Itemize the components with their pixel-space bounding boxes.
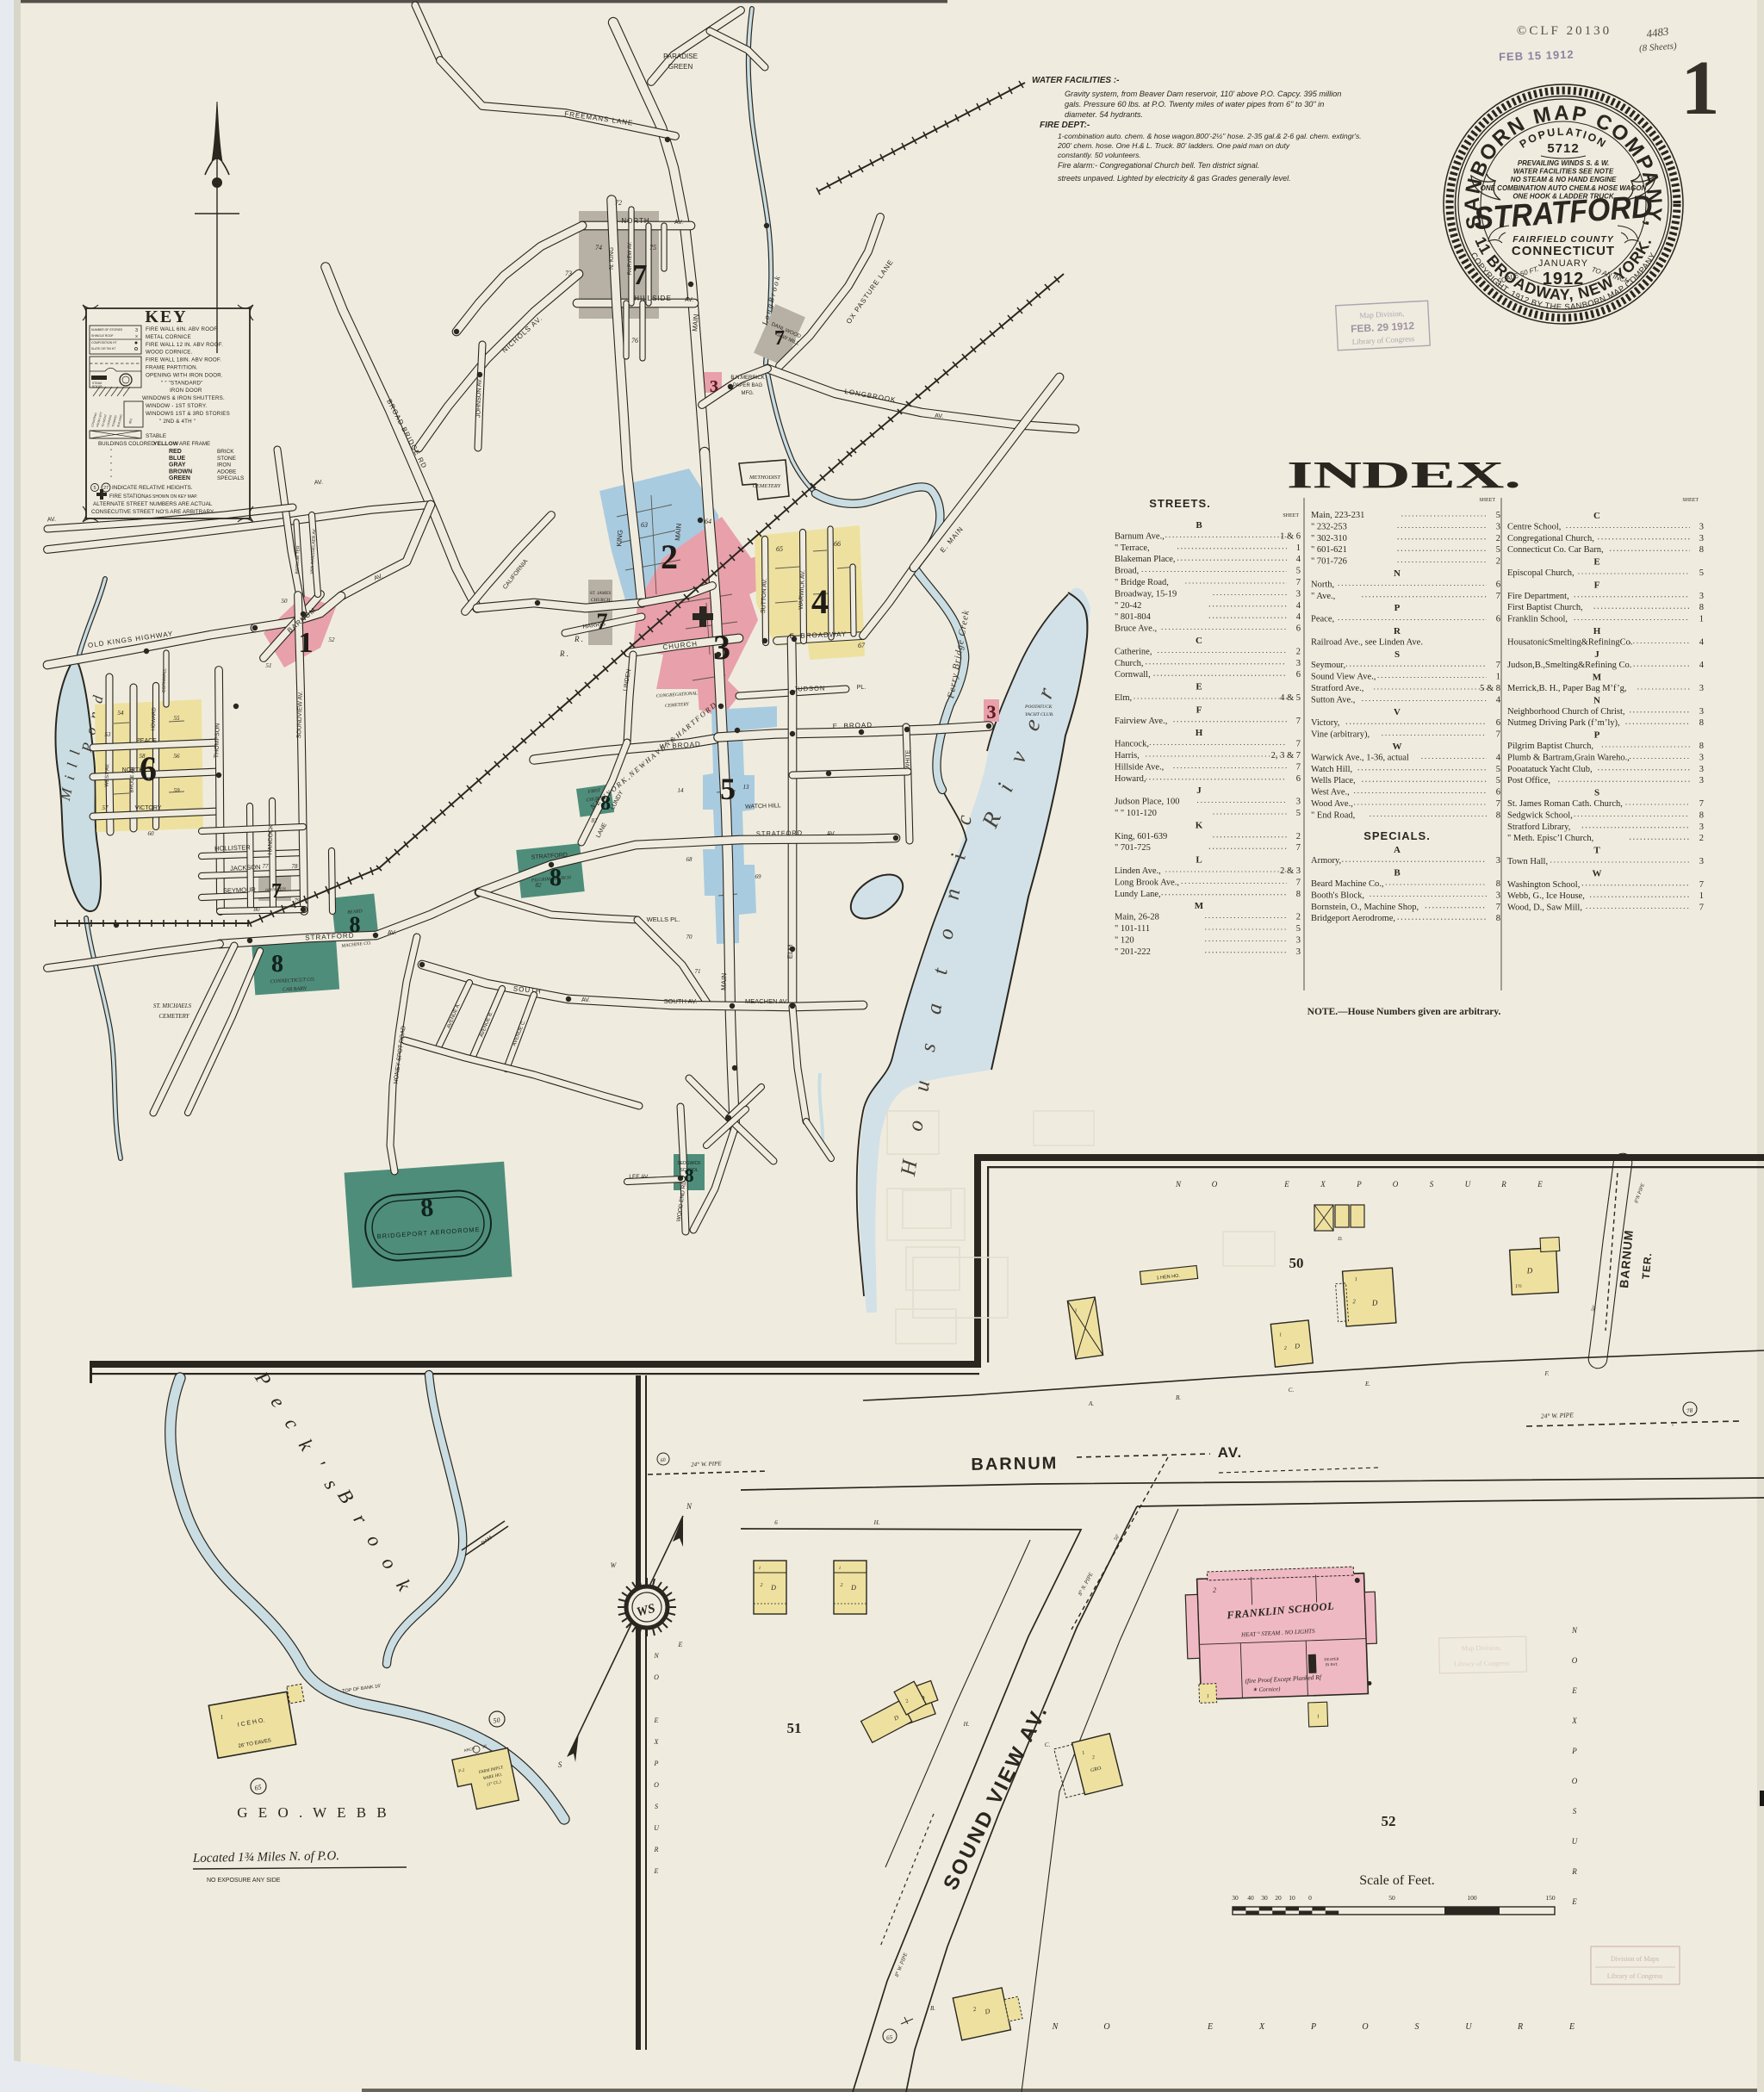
svg-text:B.: B. [1176, 1394, 1181, 1401]
svg-text:3: 3 [987, 701, 997, 723]
svg-text:NO STEAM & NO HAND ENGINE: NO STEAM & NO HAND ENGINE [1511, 176, 1617, 183]
svg-text:" 232-253: " 232-253 [1311, 522, 1347, 531]
svg-text:Wells Place,: Wells Place, [1311, 776, 1356, 785]
svg-text:W: W [1593, 868, 1602, 878]
svg-text:E: E [1568, 2022, 1575, 2032]
svg-text:SPECIALS.: SPECIALS. [1363, 829, 1431, 842]
svg-text:JUDSON: JUDSON [793, 684, 825, 692]
svg-text:FRAME PARTITION.: FRAME PARTITION. [146, 365, 198, 371]
svg-text:7: 7 [1699, 903, 1704, 913]
svg-text:WATER FACILITIES :-: WATER FACILITIES :- [1032, 76, 1120, 85]
svg-text:1: 1 [299, 627, 314, 659]
svg-text:SOUTH AV.: SOUTH AV. [664, 997, 698, 1005]
svg-text:1: 1 [1296, 543, 1301, 553]
svg-text:FIRE WALL 18IN. ABV ROOF.: FIRE WALL 18IN. ABV ROOF. [146, 357, 221, 363]
svg-text:MAIN: MAIN [720, 973, 729, 991]
svg-text:4: 4 [1496, 753, 1501, 762]
svg-text:WATER FACILITIES SEE NOTE: WATER FACILITIES SEE NOTE [1513, 168, 1614, 176]
svg-text:Armory,: Armory, [1311, 856, 1341, 866]
svg-text:6: 6 [1496, 580, 1500, 589]
svg-text:AV.: AV. [1218, 1444, 1243, 1461]
svg-text:Cornwall,: Cornwall, [1115, 670, 1151, 680]
svg-text:78: 78 [292, 863, 299, 870]
svg-text:R: R [654, 1846, 659, 1853]
svg-text:TER.: TER. [1640, 1251, 1655, 1279]
svg-text:JACKSON: JACKSON [230, 863, 261, 872]
svg-text:E: E [1537, 1180, 1543, 1189]
svg-text:3: 3 [1699, 522, 1704, 531]
svg-text:5: 5 [93, 486, 96, 491]
svg-text:5: 5 [1296, 924, 1301, 934]
svg-text:P: P [1571, 1747, 1577, 1755]
svg-text:8: 8 [271, 951, 283, 978]
svg-text:WINDOWS 1ST & 3RD STORIES: WINDOWS 1ST & 3RD STORIES [146, 411, 230, 417]
svg-text:BRUCE AV.: BRUCE AV. [129, 766, 135, 793]
svg-text:1: 1 [1207, 1694, 1209, 1699]
svg-text:WATCH HILL: WATCH HILL [745, 803, 781, 810]
svg-text:3: 3 [1296, 947, 1301, 957]
svg-text:63: 63 [641, 521, 648, 529]
svg-text:6: 6 [1296, 670, 1301, 680]
svg-text:S: S [655, 1803, 658, 1810]
svg-text:" Terrace,: " Terrace, [1115, 543, 1150, 553]
svg-text:V: V [1394, 707, 1401, 717]
svg-text:2: 2 [1284, 1346, 1288, 1351]
svg-text:diameter. 54 hydrants.: diameter. 54 hydrants. [1065, 110, 1143, 119]
svg-text:Washington School,: Washington School, [1507, 880, 1580, 890]
svg-text:W: W [1393, 742, 1402, 752]
svg-text:GRAY: GRAY [169, 462, 186, 469]
svg-text:1: 1 [1496, 673, 1500, 682]
svg-text:D: D [770, 1584, 776, 1592]
svg-text:4: 4 [1496, 695, 1501, 705]
svg-text:FIRE WALL 6IN. ABV ROOF.: FIRE WALL 6IN. ABV ROOF. [146, 326, 219, 332]
svg-text:INDEX.: INDEX. [1287, 454, 1521, 496]
svg-text:FIRE STATION,: FIRE STATION, [109, 494, 147, 500]
svg-text:M: M [1593, 673, 1602, 683]
svg-text:81: 81 [592, 817, 598, 824]
svg-text:R .: R . [559, 649, 568, 658]
svg-text:Howard,: Howard, [1115, 774, 1146, 784]
svg-text:F.: F. [1543, 1370, 1549, 1377]
svg-text:U: U [1465, 2022, 1472, 2032]
svg-text:O: O [654, 1673, 659, 1681]
svg-text:Plumb & Bartram,Grain Wareho.,: Plumb & Bartram,Grain Wareho., [1507, 753, 1630, 762]
svg-text:HANCOCK: HANCOCK [267, 824, 274, 855]
svg-text:77: 77 [263, 863, 270, 870]
svg-text:Division of Maps: Division of Maps [1611, 1955, 1659, 1963]
svg-text:Episcopal Church,: Episcopal Church, [1507, 568, 1575, 578]
svg-text:3: 3 [1296, 659, 1301, 668]
svg-text:STABLE: STABLE [146, 433, 166, 439]
svg-text:": " [110, 469, 112, 475]
svg-text:Elm,: Elm, [1115, 693, 1132, 703]
svg-text:40: 40 [1247, 1894, 1254, 1902]
svg-text:PL.: PL. [857, 685, 866, 691]
svg-text:Merrick,B. H., Paper Bag M’f’: Merrick,B. H., Paper Bag M’f’g, [1507, 684, 1627, 693]
svg-text:ST. JAMES: ST. JAMES [590, 591, 612, 596]
svg-text:Linden Ave.,: Linden Ave., [1115, 866, 1161, 876]
svg-text:E: E [1207, 2022, 1213, 2032]
svg-text:INDICATE RELATIVE HEIGHTS.: INDICATE RELATIVE HEIGHTS. [112, 485, 193, 491]
svg-text:76: 76 [631, 337, 638, 345]
svg-text:R: R [1571, 1867, 1577, 1876]
svg-text:3: 3 [1699, 776, 1704, 785]
svg-text:West Ave.,: West Ave., [1311, 788, 1350, 798]
svg-text:SPECIALS: SPECIALS [217, 475, 244, 481]
svg-text:Railroad Ave., see Linden Ave.: Railroad Ave., see Linden Ave. [1311, 637, 1423, 647]
svg-text:8: 8 [685, 1164, 694, 1186]
svg-text:AS SHOWN ON KEY MAP.: AS SHOWN ON KEY MAP. [146, 494, 197, 500]
svg-text:R: R [1500, 1180, 1506, 1189]
svg-text:51: 51 [787, 1720, 802, 1736]
svg-text:NOTE.—House Numbers given are: NOTE.—House Numbers given are arbitrary. [1307, 1007, 1501, 1017]
svg-text:" 701-726: " 701-726 [1311, 557, 1347, 567]
svg-text:O: O [1572, 1656, 1578, 1665]
svg-text:ADOBE: ADOBE [217, 469, 236, 475]
svg-text:ARE FRAME: ARE FRAME [179, 441, 210, 447]
svg-text:O: O [1393, 1180, 1399, 1189]
svg-text:6: 6 [1296, 624, 1301, 634]
svg-text:Nutmeg Driving Park (f’m’ly),: Nutmeg Driving Park (f’m’ly), [1507, 718, 1620, 728]
svg-text:3: 3 [1496, 856, 1500, 866]
svg-text:14: 14 [678, 787, 685, 794]
svg-text:7: 7 [1496, 903, 1500, 912]
svg-text:N: N [1175, 1180, 1182, 1189]
svg-text:79: 79 [295, 897, 301, 904]
svg-text:Town Hall,: Town Hall, [1507, 857, 1548, 866]
svg-text:S: S [1430, 1180, 1434, 1189]
svg-text:S: S [1594, 788, 1599, 798]
svg-text:STONE: STONE [217, 456, 236, 462]
svg-text:70: 70 [686, 934, 693, 940]
svg-text:R: R [1517, 2022, 1523, 2032]
svg-text:X: X [1320, 1180, 1326, 1189]
svg-text:50: 50 [282, 598, 289, 605]
svg-text:13: 13 [743, 784, 750, 791]
svg-text:D: D [1525, 1266, 1533, 1275]
svg-text:8: 8 [1496, 914, 1500, 923]
svg-text:7: 7 [1496, 799, 1500, 809]
svg-text:T: T [1593, 846, 1600, 856]
svg-text:North,: North, [1311, 580, 1334, 589]
svg-text:IN BST.: IN BST. [1326, 1662, 1339, 1667]
svg-text:3: 3 [1496, 522, 1500, 531]
svg-text:1: 1 [1355, 1277, 1357, 1282]
svg-text:Broad,: Broad, [1115, 567, 1139, 576]
svg-text:HILLSIDE: HILLSIDE [634, 295, 672, 302]
svg-text:C: C [1593, 511, 1600, 521]
svg-text:8: 8 [350, 912, 361, 937]
svg-text:METAL CORNICE: METAL CORNICE [146, 334, 191, 340]
svg-text:2 & 3: 2 & 3 [1280, 866, 1301, 876]
svg-text:P: P [1310, 2022, 1316, 2032]
svg-text:20: 20 [1275, 1894, 1282, 1902]
svg-text:Warwick Ave., 1-36, actual: Warwick Ave., 1-36, actual [1311, 753, 1409, 762]
svg-text:O: O [654, 1781, 659, 1789]
svg-text:3: 3 [710, 377, 718, 396]
svg-text:PAPER BAG: PAPER BAG [733, 383, 763, 388]
svg-text:8: 8 [1699, 742, 1704, 751]
svg-text:SHEET: SHEET [1479, 498, 1495, 503]
svg-text:D.: D. [1337, 1237, 1343, 1242]
svg-text:68: 68 [686, 856, 693, 863]
svg-text:X: X [1571, 1716, 1577, 1725]
svg-text:SLATE OR TIN HT: SLATE OR TIN HT [91, 347, 115, 351]
svg-text:B: B [1196, 520, 1202, 531]
svg-text:BOILER: BOILER [92, 385, 102, 388]
svg-text:constantly. 50 volunteers.: constantly. 50 volunteers. [1058, 151, 1141, 159]
svg-text:" Meth. Episc’l Church,: " Meth. Episc’l Church, [1507, 834, 1593, 843]
svg-text:" 801-804: " 801-804 [1115, 612, 1152, 622]
svg-text:Library of Congress: Library of Congress [1454, 1659, 1510, 1667]
svg-text:Long Brook Ave.,: Long Brook Ave., [1115, 878, 1179, 887]
svg-text:Bridgeport Aerodrome,: Bridgeport Aerodrome, [1311, 914, 1395, 923]
svg-text:FIRE DEPT:-: FIRE DEPT:- [1040, 121, 1090, 130]
svg-text:1: 1 [1699, 615, 1704, 624]
svg-text:K: K [1196, 820, 1203, 830]
svg-text:FEB 15 1912: FEB 15 1912 [1499, 47, 1575, 63]
svg-text:7: 7 [1296, 878, 1301, 887]
svg-text:4: 4 [1699, 661, 1705, 670]
svg-text:WEST AV.: WEST AV. [105, 763, 111, 787]
svg-text:CORNWALL: CORNWALL [162, 668, 168, 693]
svg-text:Hillside Ave.,: Hillside Ave., [1115, 762, 1164, 772]
svg-text:82: 82 [536, 882, 543, 889]
svg-text:Judson,B.,Smelting&Refining Co: Judson,B.,Smelting&Refining Co. [1507, 661, 1631, 670]
svg-text:LEE AV.: LEE AV. [629, 1174, 649, 1180]
svg-text:6: 6 [1296, 774, 1301, 784]
svg-text:P: P [1356, 1180, 1362, 1189]
svg-text:73: 73 [565, 270, 572, 277]
svg-text:53: 53 [105, 731, 112, 738]
svg-text:7: 7 [633, 259, 648, 291]
svg-text:4: 4 [1296, 612, 1301, 622]
svg-text:E: E [678, 1641, 683, 1648]
svg-text:Franklin School,: Franklin School, [1507, 615, 1568, 624]
svg-text:MEACHEN AV.: MEACHEN AV. [745, 997, 788, 1005]
svg-text:6: 6 [140, 749, 157, 788]
svg-text:7: 7 [1296, 717, 1301, 726]
svg-text:COMPOSITION HT: COMPOSITION HT [91, 341, 117, 345]
svg-text:KEY: KEY [145, 307, 187, 326]
svg-text:4: 4 [1296, 555, 1301, 564]
svg-text:80: 80 [254, 906, 261, 913]
svg-text:PARADISE: PARADISE [663, 53, 698, 60]
svg-text:10: 10 [1289, 1894, 1295, 1902]
svg-text:WINDOW - 1ST STORY.: WINDOW - 1ST STORY. [146, 403, 207, 409]
svg-text:67: 67 [858, 642, 866, 649]
svg-text:Sedgwick School,: Sedgwick School, [1507, 810, 1573, 820]
svg-text:Post Office,: Post Office, [1507, 776, 1550, 785]
svg-text:Congregational Church,: Congregational Church, [1507, 534, 1594, 543]
svg-text:R: R [1394, 626, 1401, 636]
svg-text:0: 0 [1308, 1894, 1312, 1902]
svg-text:Sutton Ave.,: Sutton Ave., [1311, 695, 1355, 705]
svg-text:Vine (arbitrary),: Vine (arbitrary), [1311, 730, 1370, 740]
svg-text:L: L [1196, 855, 1202, 866]
svg-text:J: J [1196, 785, 1202, 796]
svg-text:1 & 6: 1 & 6 [1280, 531, 1301, 541]
svg-text:2, 3 & 7: 2, 3 & 7 [1271, 751, 1301, 760]
svg-text:D: D [850, 1584, 856, 1592]
svg-text:NORTH: NORTH [621, 217, 649, 225]
svg-text:SHEET: SHEET [1283, 513, 1299, 518]
svg-text:64: 64 [705, 518, 711, 525]
svg-text:IRON DOOR: IRON DOOR [170, 388, 202, 394]
svg-text:Catherine,: Catherine, [1115, 647, 1152, 656]
svg-text:7: 7 [1496, 592, 1500, 601]
svg-text:3: 3 [1296, 798, 1301, 807]
svg-text:OPENING WITH IRON DOOR.: OPENING WITH IRON DOOR. [146, 372, 223, 378]
svg-text:O: O [1572, 1777, 1578, 1785]
svg-text:St. James Roman Cath. Church,: St. James Roman Cath. Church, [1507, 799, 1623, 809]
svg-text:1: 1 [1279, 1332, 1283, 1338]
svg-text:55: 55 [174, 715, 181, 722]
svg-text:CEMETERY: CEMETERY [753, 483, 782, 489]
svg-text:YACHT CLUB.: YACHT CLUB. [1025, 712, 1053, 717]
svg-text:1912: 1912 [1543, 270, 1585, 289]
svg-text:": " [110, 450, 112, 455]
svg-text:100: 100 [1467, 1894, 1477, 1902]
svg-text:3: 3 [1699, 534, 1704, 543]
svg-text:HEATER: HEATER [1324, 1657, 1339, 1662]
svg-text:ST. MICHAELS: ST. MICHAELS [153, 1003, 192, 1009]
svg-text:CONSECUTIVE STREET NO'S ARE AR: CONSECUTIVE STREET NO'S ARE ARBITRARY. [91, 509, 214, 515]
svg-text:5: 5 [1496, 765, 1500, 774]
svg-text:52: 52 [1382, 1813, 1396, 1829]
svg-text:STRATFORD: STRATFORD [756, 829, 803, 838]
svg-text:2: 2 [761, 1583, 763, 1588]
svg-text:GREEN: GREEN [169, 475, 190, 481]
svg-text:7: 7 [597, 609, 608, 634]
svg-text:E.: E. [1364, 1381, 1370, 1387]
svg-text:NO EXPOSURE ANY SIDE: NO EXPOSURE ANY SIDE [207, 1878, 281, 1884]
svg-text:CHURCH: CHURCH [591, 598, 612, 603]
svg-text:AV.: AV. [47, 517, 57, 524]
svg-text:D: D [1294, 1342, 1301, 1350]
svg-text:50: 50 [1289, 1255, 1304, 1271]
svg-text:5: 5 [1296, 809, 1301, 818]
svg-text:VICTORY: VICTORY [135, 805, 162, 811]
svg-text:4 & 5: 4 & 5 [1280, 693, 1301, 703]
svg-text:E: E [654, 1716, 659, 1724]
svg-text:WINDOWS & IRON SHUTTERS.: WINDOWS & IRON SHUTTERS. [142, 395, 225, 401]
svg-text:3: 3 [1699, 857, 1704, 866]
svg-text:Pooatatuck Yacht Club,: Pooatatuck Yacht Club, [1507, 765, 1593, 774]
svg-text:4: 4 [811, 582, 829, 621]
svg-text:60: 60 [148, 830, 155, 837]
svg-text:GREEN: GREEN [668, 63, 693, 71]
svg-text:P: P [654, 1760, 659, 1767]
svg-text:60: 60 [660, 1458, 666, 1464]
svg-text:Broadway, 15-19: Broadway, 15-19 [1115, 589, 1177, 599]
svg-text:Scale of Feet.: Scale of Feet. [1359, 1873, 1435, 1888]
svg-text:8: 8 [1496, 879, 1500, 889]
svg-text:F: F [1594, 580, 1600, 590]
svg-text:8: 8 [1699, 718, 1704, 728]
svg-text:H: H [1196, 728, 1203, 738]
svg-text:Wood Ave.,: Wood Ave., [1311, 799, 1353, 809]
svg-text:3: 3 [135, 328, 138, 333]
svg-text:1: 1 [839, 1567, 842, 1571]
svg-text:7: 7 [1296, 578, 1301, 587]
svg-text:N: N [1394, 568, 1401, 579]
svg-text:U: U [1465, 1180, 1471, 1189]
svg-text:" Bridge Road,: " Bridge Road, [1115, 578, 1169, 587]
svg-text:BROWN: BROWN [169, 469, 192, 475]
svg-text:THOMPSON: THOMPSON [214, 723, 220, 759]
svg-text:1-combination auto. chem. & ho: 1-combination auto. chem. & hose wagon.8… [1058, 132, 1362, 140]
svg-text:7: 7 [1496, 730, 1500, 740]
svg-text:WELLS PL.: WELLS PL. [647, 916, 680, 923]
svg-text:E: E [1593, 557, 1599, 568]
svg-text:54: 54 [118, 710, 125, 717]
svg-text:FIRE WALL 12 IN. ABV ROOF.: FIRE WALL 12 IN. ABV ROOF. [146, 342, 223, 348]
svg-text:Stratford Library,: Stratford Library, [1507, 823, 1570, 832]
svg-text:gals. Pressure 60 lbs. at P: gals. Pressure 60 lbs. at P.O. Twenty mi… [1065, 100, 1324, 109]
svg-text:2: 2 [1296, 647, 1301, 656]
svg-text:AV.: AV. [685, 297, 693, 303]
svg-text:7: 7 [1296, 762, 1301, 772]
svg-text:3: 3 [1296, 935, 1301, 945]
svg-text:74: 74 [595, 244, 602, 251]
svg-text:STREETS.: STREETS. [1149, 497, 1211, 510]
svg-text:E. BROAD: E. BROAD [833, 721, 873, 730]
svg-text:6: 6 [1496, 788, 1500, 798]
svg-text:65: 65 [254, 1783, 262, 1791]
svg-text:2: 2 [661, 537, 678, 576]
svg-text:Peace,: Peace, [1311, 615, 1334, 624]
svg-text:Harris,: Harris, [1115, 751, 1140, 760]
svg-text:N: N [1571, 1626, 1578, 1635]
svg-text:P: P [1594, 730, 1600, 741]
svg-text:7: 7 [774, 327, 785, 350]
svg-text:PEACE: PEACE [136, 738, 157, 744]
svg-text:Watch Hill,: Watch Hill, [1311, 765, 1352, 774]
svg-text:AV.: AV. [581, 997, 590, 1003]
svg-text:JANUARY: JANUARY [1538, 258, 1588, 269]
svg-text:HOLLISTER: HOLLISTER [214, 843, 252, 852]
svg-text:69: 69 [755, 873, 762, 880]
svg-text:5: 5 [1699, 568, 1704, 578]
svg-text:H: H [1593, 626, 1601, 636]
svg-text:200' chem. hose. One H.& L. T: 200' chem. hose. One H.& L. Truck. 80' l… [1057, 141, 1290, 150]
svg-text:8: 8 [1699, 810, 1704, 820]
svg-text:7: 7 [1496, 661, 1500, 670]
svg-text:©CLF 20130: ©CLF 20130 [1517, 24, 1612, 38]
svg-text:7: 7 [1699, 799, 1704, 809]
svg-text:Located 1¾ Miles N. of P.: Located 1¾ Miles N. of P.O. [192, 1849, 339, 1865]
svg-text:YELLOW: YELLOW [153, 441, 179, 447]
svg-text:7: 7 [1296, 843, 1301, 853]
svg-text:" 2ND & 4TH ": " 2ND & 4TH " [159, 419, 196, 425]
svg-text:Victory,: Victory, [1311, 718, 1339, 728]
svg-text:Judson Place, 100: Judson Place, 100 [1115, 798, 1180, 807]
svg-text:H.: H. [873, 1519, 880, 1526]
svg-text:E: E [1571, 1897, 1577, 1906]
svg-text:Fairview Ave.,: Fairview Ave., [1115, 717, 1167, 726]
svg-text:CONNECTICUT: CONNECTICUT [1512, 244, 1615, 258]
svg-text:" 302-310: " 302-310 [1311, 534, 1347, 543]
svg-text:3: 3 [1699, 765, 1704, 774]
svg-text:Church,: Church, [1115, 659, 1144, 668]
svg-text:E: E [654, 1867, 659, 1875]
svg-text:7: 7 [1296, 740, 1301, 749]
svg-text:Centre School,: Centre School, [1507, 522, 1561, 531]
svg-text:BRICK: BRICK [217, 449, 234, 455]
svg-text:Map Division,: Map Division, [1462, 1644, 1501, 1653]
